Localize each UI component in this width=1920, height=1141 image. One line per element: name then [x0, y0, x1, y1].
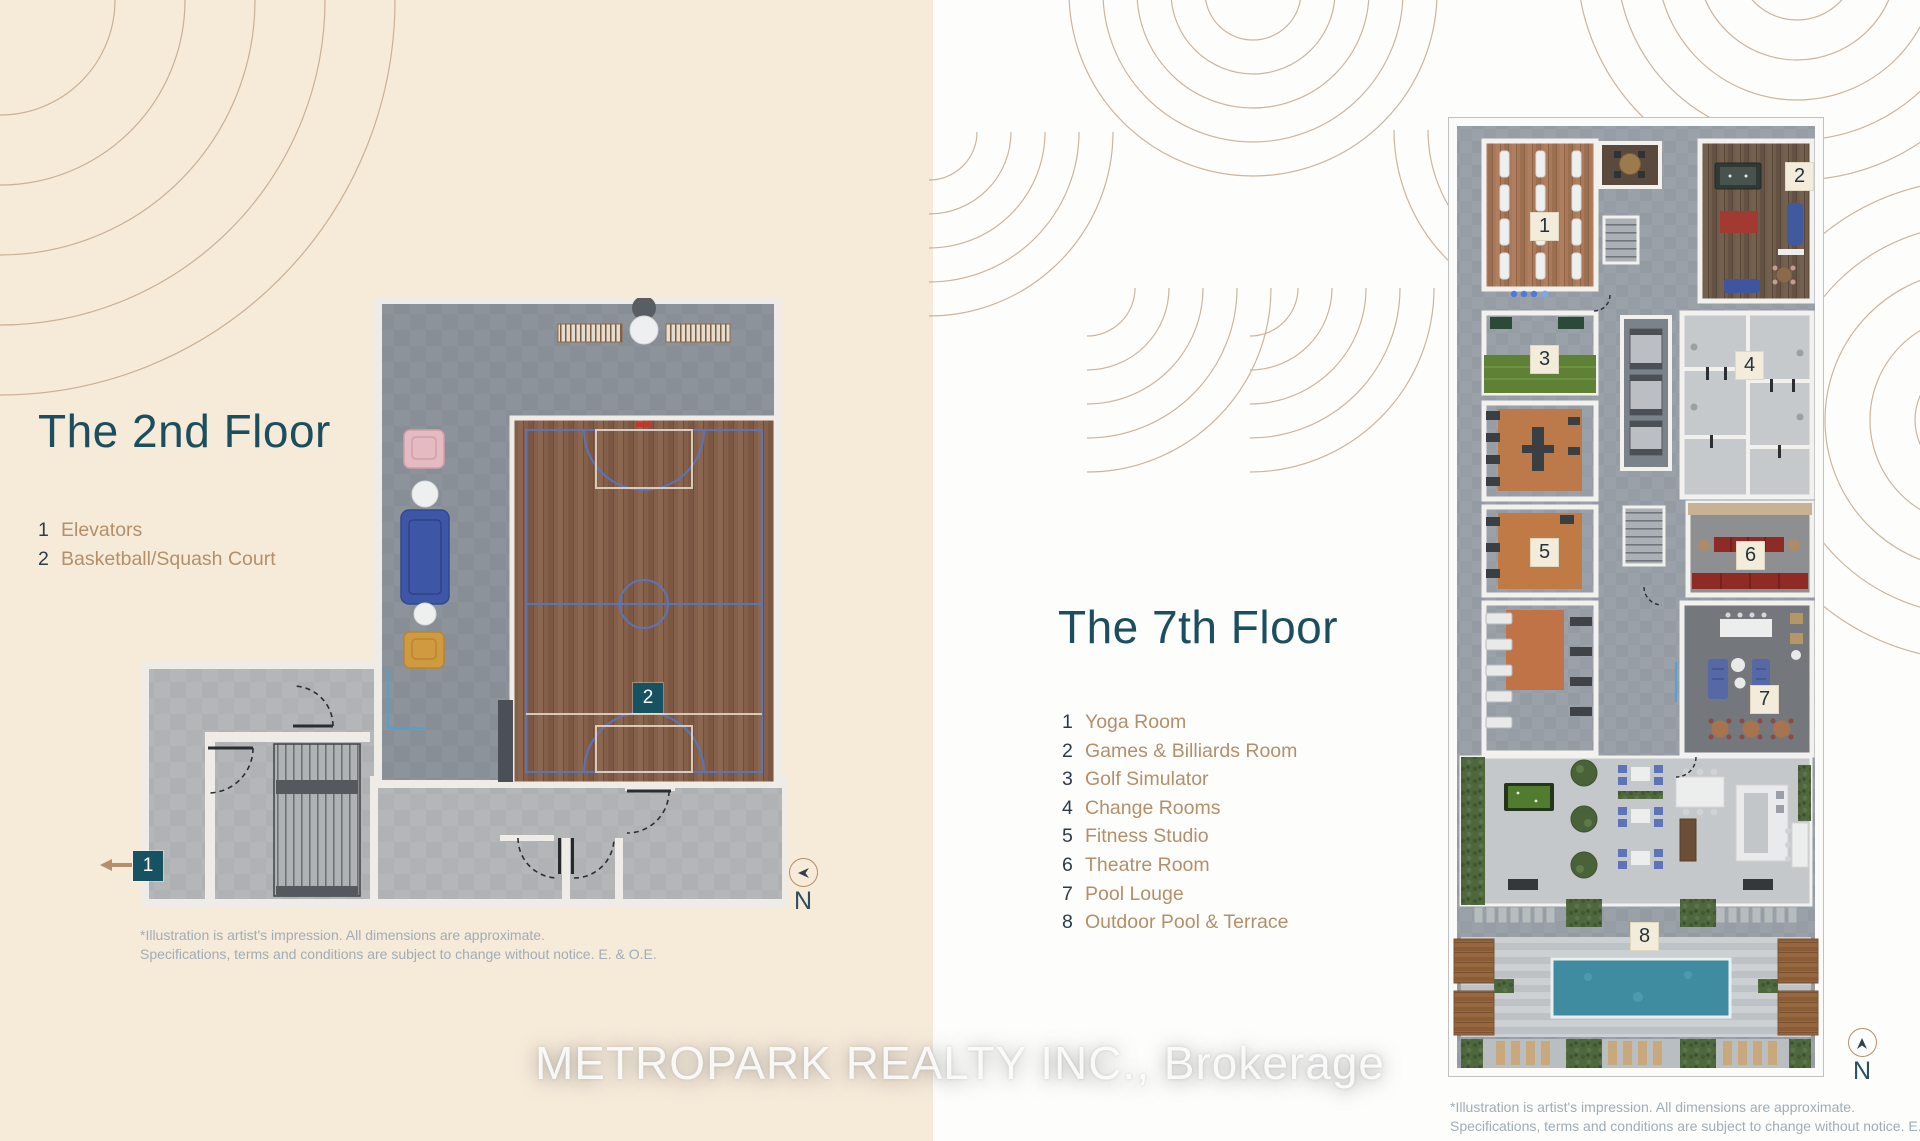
basketball-court [498, 418, 776, 784]
legend-number: 1 [38, 516, 61, 545]
legend-label: Games & Billiards Room [1085, 737, 1297, 766]
legend-number: 4 [1062, 794, 1085, 823]
floor7-marker-7: 7 [1750, 685, 1779, 714]
terrace-table-right [1785, 823, 1808, 867]
legend-item: 7 Pool Louge [1062, 880, 1297, 909]
floor2-marker-2: 2 [633, 683, 663, 713]
disclaimer-line2: Specifications, terms and conditions are… [1450, 1118, 1920, 1134]
floor7-marker-2: 2 [1785, 162, 1814, 191]
floor7-legend: 1 Yoga Room 2 Games & Billiards Room 3 G… [1062, 708, 1297, 937]
floor2-plan-drawing [138, 298, 788, 910]
legend-item: 5 Fitness Studio [1062, 822, 1297, 851]
disclaimer-line1: *Illustration is artist's impression. Al… [1450, 1099, 1855, 1115]
floor2-marker-1: 1 [133, 851, 163, 881]
floor7-plan-illustration: 1 2 3 4 5 6 7 8 [1448, 117, 1824, 1077]
mini-golf [1504, 783, 1554, 811]
legend-item: 1 Yoga Room [1062, 708, 1297, 737]
stairs-top [1604, 217, 1638, 263]
legend-number: 2 [38, 545, 61, 574]
floor7-marker-1: 1 [1530, 212, 1559, 241]
outdoor-kitchen [1736, 785, 1788, 861]
legend-item: 4 Change Rooms [1062, 794, 1297, 823]
legend-label: Fitness Studio [1085, 822, 1209, 851]
legend-number: 8 [1062, 908, 1085, 937]
elevator-core [1622, 317, 1670, 469]
legend-label: Theatre Room [1085, 851, 1210, 880]
stairwell [274, 744, 360, 896]
north-arrow-left-icon [796, 867, 810, 879]
sign-board [1743, 879, 1773, 890]
change-rooms [1682, 313, 1812, 497]
terrace-trees [1571, 760, 1597, 878]
compass-circle [789, 858, 818, 887]
legend-item: 3 Golf Simulator [1062, 765, 1297, 794]
legend-number: 2 [1062, 737, 1085, 766]
floor7-marker-8: 8 [1630, 922, 1659, 951]
legend-item: 8 Outdoor Pool & Terrace [1062, 908, 1297, 937]
pool-deck [1454, 937, 1818, 1037]
sign-board [1508, 879, 1538, 890]
legend-label: Golf Simulator [1085, 765, 1209, 794]
stairs-mid [1624, 507, 1664, 565]
lounge-tables [1709, 719, 1794, 740]
legend-item: 6 Theatre Room [1062, 851, 1297, 880]
legend-label: Pool Louge [1085, 880, 1184, 909]
legend-number: 3 [1062, 765, 1085, 794]
legend-number: 1 [1062, 708, 1085, 737]
floor7-marker-5: 5 [1530, 538, 1559, 567]
legend-number: 5 [1062, 822, 1085, 851]
disclaimer-line2: Specifications, terms and conditions are… [140, 946, 657, 962]
left-arrow-icon [100, 858, 132, 870]
floor2-disclaimer: *Illustration is artist's impression. Al… [140, 926, 680, 963]
locker-sauna-area [1484, 603, 1596, 753]
outdoor-terrace [1461, 757, 1811, 905]
legend-number: 6 [1062, 851, 1085, 880]
brochure-page: The 2nd Floor 1 Elevators 2 Basketball/S… [0, 0, 1920, 1141]
dining-nook [1600, 143, 1660, 187]
floor2-plan-illustration: 1 2 [138, 298, 788, 910]
legend-label: Change Rooms [1085, 794, 1221, 823]
legend-label: Outdoor Pool & Terrace [1085, 908, 1288, 937]
north-label: N [785, 888, 821, 914]
floor7-marker-4: 4 [1735, 351, 1764, 380]
basketball-hoop [636, 422, 652, 427]
legend-label: Elevators [61, 516, 142, 545]
floor2-compass: N [785, 858, 821, 914]
terrace-screen [1680, 819, 1696, 861]
disclaimer-line1: *Illustration is artist's impression. Al… [140, 927, 545, 943]
pool-lounge [1682, 603, 1812, 755]
swimming-pool [1552, 959, 1730, 1017]
legend-label: Yoga Room [1085, 708, 1186, 737]
floor7-title: The 7th Floor [1058, 600, 1338, 654]
floor7-marker-6: 6 [1736, 541, 1765, 570]
legend-item: 2 Games & Billiards Room [1062, 737, 1297, 766]
floor7-disclaimer: *Illustration is artist's impression. Al… [1450, 1098, 1920, 1135]
legend-number: 7 [1062, 880, 1085, 909]
fitness-studio-upper [1484, 403, 1596, 499]
brokerage-watermark: METROPARK REALTY INC., Brokerage [0, 1036, 1920, 1090]
floor7-marker-3: 3 [1530, 345, 1559, 374]
